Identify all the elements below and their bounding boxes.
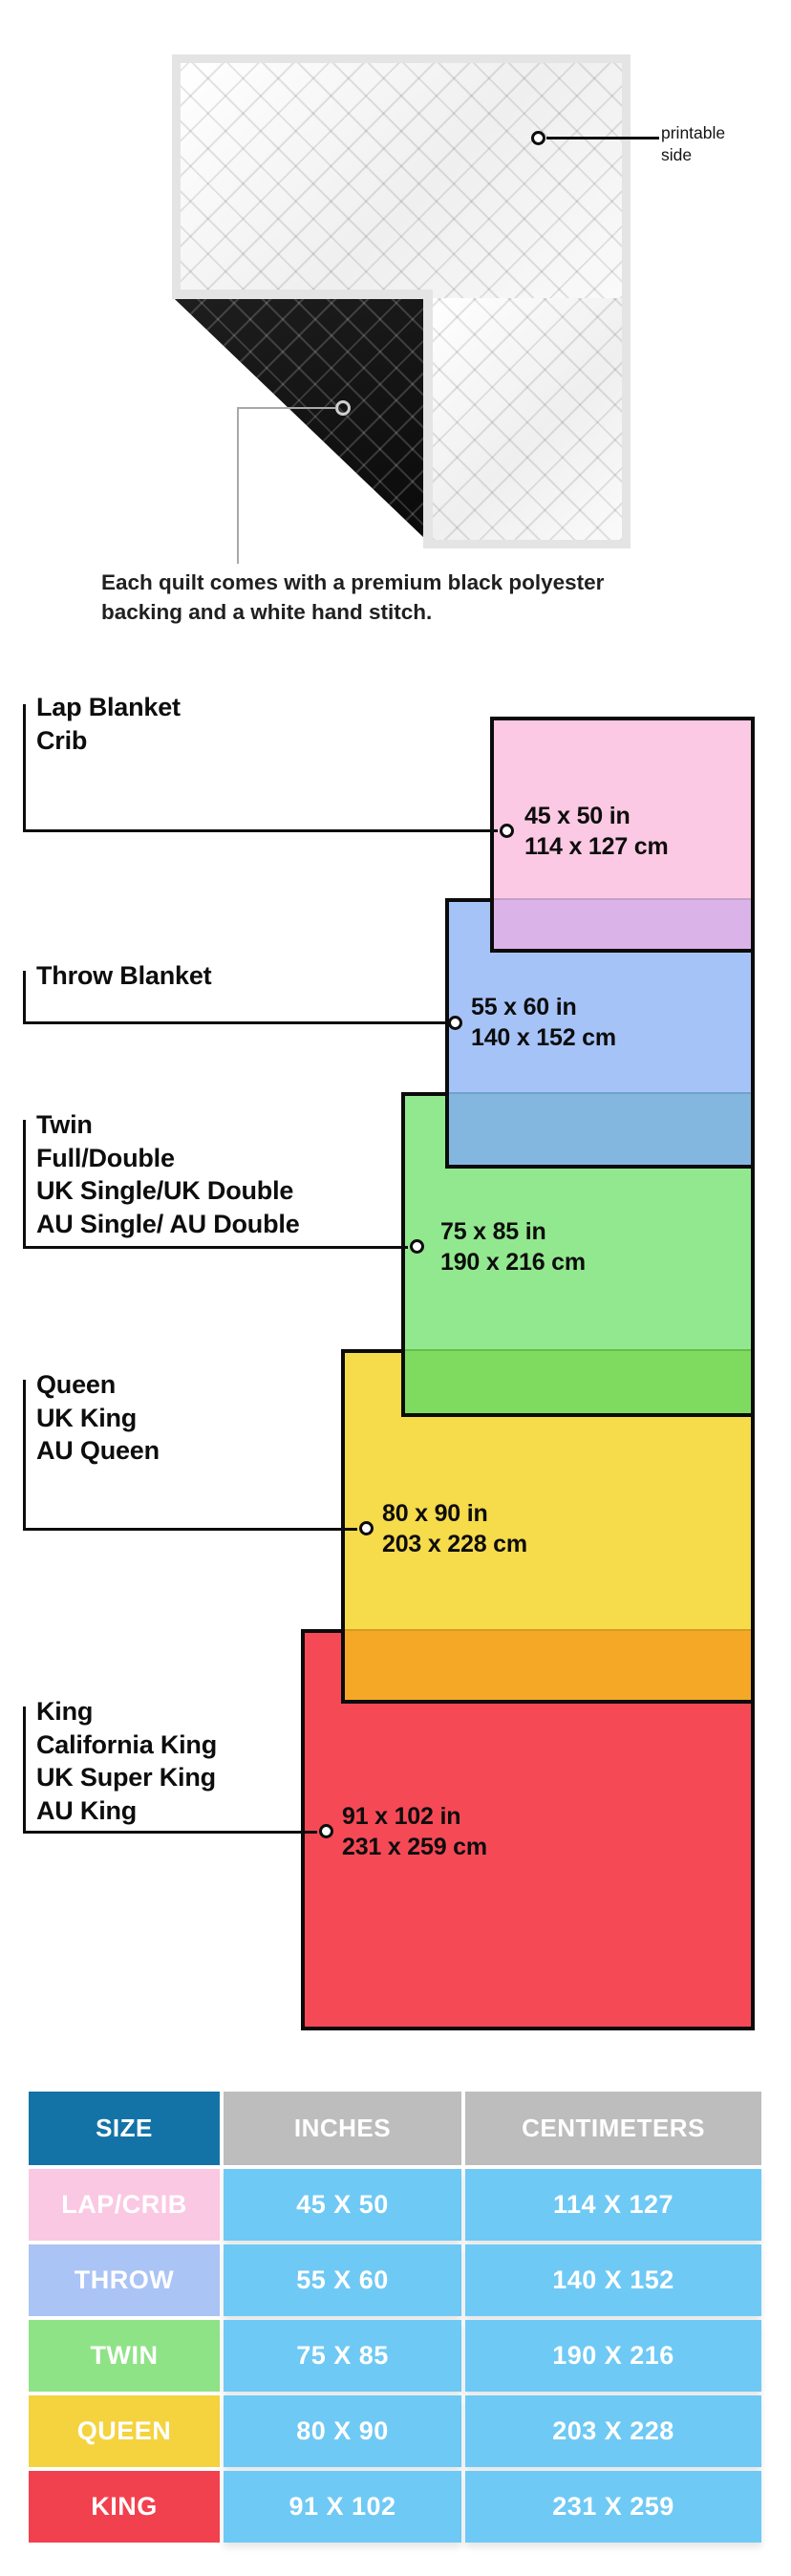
leader-twin-v	[23, 1120, 26, 1249]
table-header-row: SIZE INCHES CENTIMETERS	[29, 2092, 761, 2165]
header-centimeters: CENTIMETERS	[465, 2092, 761, 2165]
dim-throw-cm: 140 x 152 cm	[471, 1022, 616, 1053]
cell-twin-inches: 75 X 85	[224, 2320, 461, 2392]
quilt-caption: Each quilt comes with a premium black po…	[101, 568, 604, 627]
overlap-throw-twin	[449, 1092, 751, 1165]
leader-throw-h	[23, 1021, 446, 1024]
row-label-throw: THROW	[29, 2244, 220, 2316]
leader-twin-dot-icon	[410, 1239, 424, 1254]
dim-lap-crib: 45 x 50 in 114 x 127 cm	[524, 801, 669, 862]
printable-side-label: printable side	[661, 122, 725, 166]
label-group-lap-crib: Lap Blanket Crib	[36, 691, 181, 757]
label-group-twin: Twin Full/Double UK Single/UK Double AU …	[36, 1108, 300, 1240]
label-lap-blanket: Lap Blanket	[36, 691, 181, 724]
dim-lap-inches: 45 x 50 in	[524, 801, 669, 831]
cell-twin-cm: 190 X 216	[465, 2320, 761, 2392]
printable-side-callout-dot-icon	[531, 131, 545, 145]
label-group-queen: Queen UK King AU Queen	[36, 1368, 160, 1468]
table-row-throw: THROW 55 X 60 140 X 152	[29, 2244, 761, 2316]
quilt-illustration	[172, 54, 631, 548]
leader-queen-dot-icon	[359, 1521, 374, 1535]
dim-lap-cm: 114 x 127 cm	[524, 831, 669, 862]
leader-queen-h	[23, 1528, 357, 1531]
leader-twin-h	[23, 1246, 408, 1249]
dim-queen-inches: 80 x 90 in	[382, 1498, 527, 1529]
label-group-throw: Throw Blanket	[36, 959, 211, 993]
leader-lap-h	[23, 829, 498, 832]
label-full-double: Full/Double	[36, 1142, 300, 1175]
row-label-lap-crib: LAP/CRIB	[29, 2169, 220, 2241]
cell-king-inches: 91 X 102	[224, 2471, 461, 2543]
backing-callout-line-h	[238, 407, 336, 409]
printable-side-label-line1: printable	[661, 122, 725, 144]
dim-throw-inches: 55 x 60 in	[471, 992, 616, 1022]
table-row-twin: TWIN 75 X 85 190 X 216	[29, 2320, 761, 2392]
label-king: King	[36, 1695, 217, 1728]
leader-throw-v	[23, 971, 26, 1024]
label-uk-super-king: UK Super King	[36, 1761, 217, 1794]
dim-king-cm: 231 x 259 cm	[342, 1832, 487, 1862]
label-group-king: King California King UK Super King AU Ki…	[36, 1695, 217, 1827]
label-au-king: AU King	[36, 1794, 217, 1828]
leader-king-dot-icon	[319, 1824, 333, 1838]
table-row-lap-crib: LAP/CRIB 45 X 50 114 X 127	[29, 2169, 761, 2241]
dim-king: 91 x 102 in 231 x 259 cm	[342, 1801, 487, 1862]
header-size: SIZE	[29, 2092, 220, 2165]
backing-callout-line-v	[237, 407, 239, 564]
quilt-black-backing-fold	[175, 299, 423, 537]
table-row-king: KING 91 X 102 231 X 259	[29, 2471, 761, 2543]
dim-queen-cm: 203 x 228 cm	[382, 1529, 527, 1559]
cell-queen-cm: 203 X 228	[465, 2395, 761, 2467]
dim-throw: 55 x 60 in 140 x 152 cm	[471, 992, 616, 1053]
cell-queen-inches: 80 X 90	[224, 2395, 461, 2467]
label-uk-single-double: UK Single/UK Double	[36, 1174, 300, 1208]
row-label-king: KING	[29, 2471, 220, 2543]
label-queen: Queen	[36, 1368, 160, 1402]
quilt-printable-side	[172, 54, 631, 298]
label-uk-king: UK King	[36, 1402, 160, 1435]
dim-queen: 80 x 90 in 203 x 228 cm	[382, 1498, 527, 1559]
cell-king-cm: 231 X 259	[465, 2471, 761, 2543]
leader-throw-dot-icon	[448, 1016, 462, 1030]
label-au-single-double: AU Single/ AU Double	[36, 1208, 300, 1241]
cell-lap-inches: 45 X 50	[224, 2169, 461, 2241]
leader-lap-v	[23, 704, 26, 832]
cell-throw-inches: 55 X 60	[224, 2244, 461, 2316]
leader-king-v	[23, 1707, 26, 1834]
quilt-size-infographic: printable side Each quilt comes with a p…	[0, 0, 791, 2576]
size-table: SIZE INCHES CENTIMETERS LAP/CRIB 45 X 50…	[29, 2092, 761, 2546]
leader-lap-dot-icon	[500, 824, 514, 838]
label-crib: Crib	[36, 724, 181, 758]
cell-throw-cm: 140 X 152	[465, 2244, 761, 2316]
table-row-queen: QUEEN 80 X 90 203 X 228	[29, 2395, 761, 2467]
backing-callout-dot-icon	[335, 400, 351, 416]
label-california-king: California King	[36, 1728, 217, 1762]
printable-side-label-line2: side	[661, 144, 725, 166]
row-label-queen: QUEEN	[29, 2395, 220, 2467]
overlap-lap-throw	[494, 898, 751, 949]
quilt-caption-line1: Each quilt comes with a premium black po…	[101, 568, 604, 597]
quilt-right-panel	[423, 298, 631, 548]
printable-side-callout-line	[546, 137, 659, 140]
quilt-caption-line2: backing and a white hand stitch.	[101, 597, 604, 627]
overlap-twin-queen	[405, 1349, 751, 1413]
quilt-edge-binding	[172, 290, 433, 299]
label-twin: Twin	[36, 1108, 300, 1142]
dim-twin-cm: 190 x 216 cm	[440, 1247, 586, 1277]
leader-queen-v	[23, 1380, 26, 1531]
cell-lap-cm: 114 X 127	[465, 2169, 761, 2241]
label-throw-blanket: Throw Blanket	[36, 959, 211, 993]
row-label-twin: TWIN	[29, 2320, 220, 2392]
dim-king-inches: 91 x 102 in	[342, 1801, 487, 1832]
label-au-queen: AU Queen	[36, 1434, 160, 1468]
overlap-queen-king	[345, 1629, 751, 1700]
dim-twin: 75 x 85 in 190 x 216 cm	[440, 1216, 586, 1277]
leader-king-h	[23, 1831, 317, 1834]
dim-twin-inches: 75 x 85 in	[440, 1216, 586, 1247]
header-inches: INCHES	[224, 2092, 461, 2165]
